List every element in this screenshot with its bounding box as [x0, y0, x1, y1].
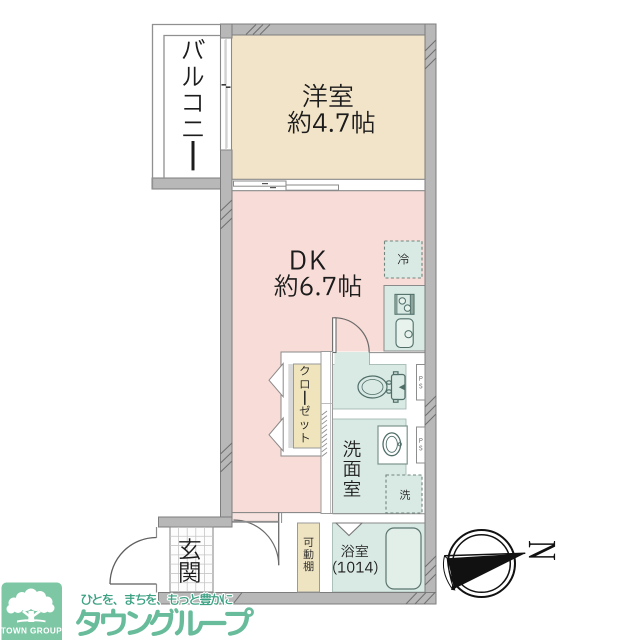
svg-text:TOWN GROUP: TOWN GROUP — [1, 627, 62, 636]
